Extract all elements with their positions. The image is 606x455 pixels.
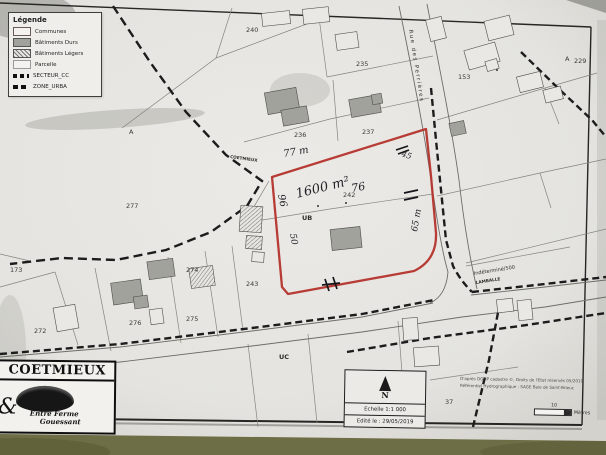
- credits-line1: D'après DGFiP cadastre ©, Droits de l'Et…: [460, 376, 559, 383]
- legend-item-legers: Bâtiments Légers: [13, 48, 97, 59]
- secteur-swatch-icon: [13, 74, 29, 78]
- parcel-label-276: 276: [129, 319, 141, 327]
- parcel-label-275: 275: [186, 315, 198, 323]
- logo-ampersand: &: [0, 394, 18, 419]
- community-logo: & Entre Ferme Gouessant: [0, 380, 114, 427]
- credits-line2: Référentiel Hydrographique : SAGE Baie d…: [460, 383, 559, 390]
- legend-item-secteur: SECTEUR_CC: [13, 70, 97, 81]
- parcel-label-A: A: [565, 55, 570, 63]
- logo-text-line2: Gouessant: [40, 417, 81, 426]
- parcel-label-229: 229: [574, 57, 586, 65]
- parcel-label-UC: UC: [279, 353, 289, 361]
- urba-swatch-icon: [13, 85, 29, 89]
- north-indicator: N: [345, 370, 426, 404]
- legend-items: CommunesBâtiments DursBâtiments LégersPa…: [13, 26, 97, 92]
- legend-item-label: Communes: [35, 28, 66, 34]
- legend-item-durs: Bâtiments Durs: [13, 37, 97, 48]
- parcel-label-277: 277: [126, 202, 138, 210]
- parcel-label-UB: UB: [302, 214, 312, 222]
- north-letter: N: [381, 390, 388, 398]
- parcel-label-235: 235: [356, 60, 368, 68]
- durs-swatch-icon: [13, 38, 31, 47]
- parcel-label-173: 173: [10, 266, 22, 274]
- parcelle-swatch-icon: [13, 60, 31, 69]
- parcel-label-274: 274: [186, 266, 198, 274]
- legend-item-label: ZONE_URBA: [33, 83, 67, 89]
- photo-of-cadastral-map: Rue des Perrières Indéterminé/500 LAMBAL…: [0, 0, 606, 455]
- north-arrow-icon: [379, 375, 391, 390]
- commune-banner: COETMIEUX & Entre Ferme Gouessant: [0, 359, 116, 434]
- legend-item-label: SECTEUR_CC: [33, 72, 69, 78]
- legend-item-communes: Communes: [13, 26, 97, 37]
- scale-box: N Echelle 1:1 000 Edité le : 29/05/2019: [344, 369, 427, 428]
- parcel-label-240: 240: [246, 26, 258, 34]
- legend-title: Légende: [13, 16, 97, 24]
- legend-item-label: Parcelle: [35, 61, 57, 67]
- parcel-label-243: 243: [246, 280, 258, 288]
- bar-scale-unit: Mètres: [573, 410, 589, 416]
- commune-name: COETMIEUX: [0, 361, 114, 381]
- parcel-label-236: 236: [294, 131, 306, 139]
- parcel-label-A: A: [129, 128, 134, 136]
- handwriting-50: 50: [287, 233, 299, 246]
- legend-item-urba: ZONE_URBA: [13, 81, 97, 92]
- legend-item-label: Bâtiments Légers: [35, 50, 83, 56]
- bar-scale-rule: [534, 408, 572, 416]
- legend-box: Légende CommunesBâtiments DursBâtiments …: [8, 12, 102, 97]
- parcel-label-153: 153: [458, 73, 470, 81]
- parcel-label-37: 37: [445, 398, 453, 406]
- legend-item-parcelle: Parcelle: [13, 59, 97, 70]
- edition-date: Edité le : 29/05/2019: [345, 415, 425, 427]
- parcel-label-272: 272: [34, 327, 46, 335]
- parcel-label-237: 237: [362, 128, 374, 136]
- handwriting-76: 76: [350, 180, 366, 195]
- bar-scale-distance: 10: [538, 402, 570, 408]
- communes-swatch-icon: [13, 27, 31, 36]
- legend-item-label: Bâtiments Durs: [35, 39, 78, 45]
- legers-swatch-icon: [13, 49, 31, 58]
- bar-scale: 10 Mètres: [534, 401, 594, 416]
